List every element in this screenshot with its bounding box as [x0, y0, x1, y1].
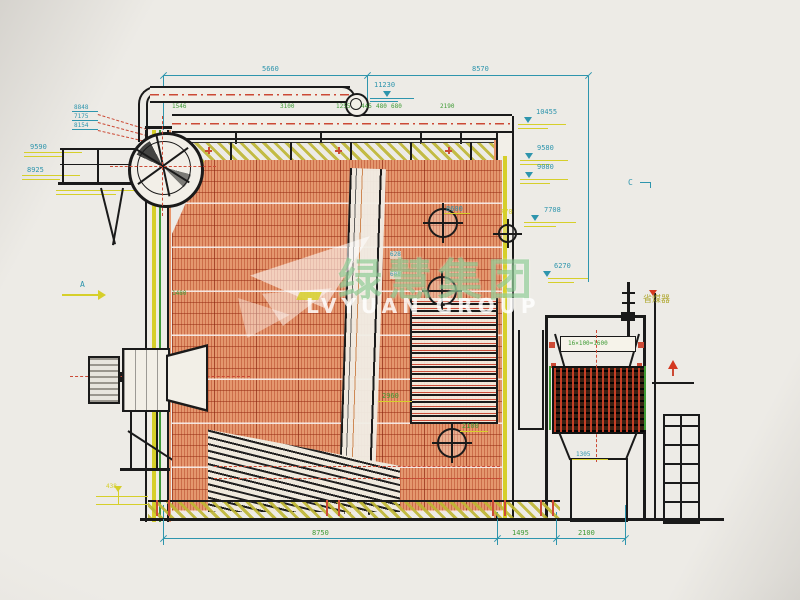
- level-line: [370, 98, 414, 99]
- level-line: [520, 160, 568, 161]
- leader-line: [444, 213, 470, 214]
- burner-foot: [120, 468, 170, 471]
- flue-duct-wall: [542, 330, 544, 430]
- level-line: [518, 128, 548, 129]
- level-line: [548, 282, 574, 283]
- survey-marker-stem: [672, 369, 674, 376]
- left-elev-2: 7175: [74, 113, 88, 121]
- platform-trim: [56, 190, 142, 191]
- platform-rail: [60, 164, 138, 165]
- elev-7708: 7708: [544, 206, 561, 214]
- dim-small: 3100: [280, 103, 294, 111]
- anchor-column: [540, 500, 554, 516]
- dim-small: 1255: [336, 103, 350, 111]
- level-line: [24, 156, 62, 157]
- burner-leg: [156, 408, 158, 468]
- steam-pipe-upper: [150, 86, 350, 103]
- survey-baseline: [652, 382, 694, 384]
- cross-mark-icon: [448, 147, 450, 154]
- level-line: [518, 124, 566, 125]
- arrowhead-icon: [98, 290, 106, 300]
- photographed-drawing-sheet: 5660 8570 11230 1546 3100 1255 445 480 6…: [0, 0, 800, 600]
- level-line: [96, 496, 148, 497]
- platform-brace: [112, 188, 124, 245]
- stairs: [663, 414, 700, 524]
- anno-438: 438: [106, 483, 117, 491]
- platform-post: [97, 148, 99, 184]
- level-flag-icon: [524, 117, 532, 123]
- survey-marker-icon: [668, 360, 678, 369]
- anno-608: 608: [390, 271, 401, 279]
- elev-9580: 9580: [537, 144, 554, 152]
- elev-10455: 10455: [536, 108, 557, 116]
- boiler-top-line: [145, 138, 513, 140]
- cross-mark-icon: [338, 147, 340, 154]
- dim-top-left: 5660: [262, 65, 279, 73]
- level-line: [520, 179, 568, 180]
- level-line: [22, 175, 80, 176]
- superheater-coil: [410, 298, 498, 424]
- crosshair-symbol-icon: [498, 224, 517, 243]
- eco-hopper-side: [625, 432, 638, 461]
- extension-line: [588, 76, 589, 282]
- valve: [621, 312, 635, 321]
- dimension-line-top: [163, 75, 588, 76]
- eco-centerline: [596, 330, 597, 462]
- underline: [460, 431, 488, 432]
- level-flag-icon: [525, 153, 533, 159]
- level-line: [524, 226, 556, 227]
- cross-mark-icon: [208, 147, 210, 154]
- pipe-flange: [622, 292, 635, 294]
- eco-outlet-duct: [570, 458, 628, 522]
- dim-small: 480: [376, 103, 387, 111]
- platform-post: [62, 148, 64, 184]
- eco-hopper-side: [558, 432, 571, 461]
- anchor-column: [492, 500, 506, 516]
- crosshair-symbol-icon: [427, 276, 457, 306]
- level-line: [22, 179, 60, 180]
- section-mark-c: C: [628, 179, 633, 187]
- left-elev-3: 8154: [74, 122, 88, 130]
- anno-770: 770: [500, 208, 513, 216]
- anchor-column: [326, 500, 340, 516]
- section-arrow: [62, 294, 100, 296]
- corner-marker: [638, 342, 644, 348]
- burner-body: [122, 348, 170, 412]
- level-flag-icon: [543, 271, 551, 277]
- elev-9080: 9080: [537, 163, 554, 171]
- level-line: [524, 222, 576, 223]
- eco-frame-column: [545, 316, 548, 520]
- platform-rail: [60, 148, 138, 150]
- eco-side-post: [549, 366, 551, 430]
- header-pipe: [172, 114, 512, 133]
- underline: [572, 459, 608, 460]
- left-9590: 9590: [30, 143, 47, 151]
- anno-8600: 8600: [446, 205, 463, 213]
- left-elev-1: 8848: [74, 104, 88, 112]
- drum-centerline: [162, 116, 163, 216]
- dim-top-right: 8570: [472, 65, 489, 73]
- dim-small: 1546: [172, 103, 186, 111]
- economizer-label: 省煤器: [643, 296, 670, 304]
- flue-duct-wall: [518, 428, 544, 430]
- burner-leg: [130, 408, 132, 468]
- anno-2960: 2960: [382, 392, 399, 400]
- anchor-column: [156, 500, 170, 516]
- level-flag-icon: [383, 91, 391, 97]
- level-line: [24, 152, 82, 153]
- dim-small: 445: [361, 103, 372, 111]
- anno-1305: 1305: [576, 451, 590, 459]
- crosshair-symbol-icon: [437, 428, 467, 458]
- burner-cone-inner: [168, 347, 206, 409]
- grate-centerline: [214, 478, 500, 479]
- anno-2100: 2100: [462, 422, 479, 430]
- flue-duct-wall: [518, 330, 520, 430]
- economizer-tube-bank: [552, 366, 646, 434]
- dim-bottom-8750: 8750: [312, 529, 329, 537]
- pipe-flange: [622, 302, 635, 304]
- level-line: [96, 504, 148, 505]
- level-11230: 11230: [374, 81, 395, 89]
- burner-motor: [88, 356, 120, 404]
- level-line: [548, 278, 588, 279]
- anno-1480: 1480: [172, 290, 186, 298]
- section-mark-a: A: [80, 281, 85, 289]
- left-8925: 8925: [27, 166, 44, 174]
- dim-small: 2190: [440, 103, 454, 111]
- level-flag-icon: [531, 215, 539, 221]
- elev-6270: 6270: [554, 262, 571, 270]
- anno-628: 628: [390, 251, 401, 259]
- eco-side-post: [644, 366, 646, 430]
- level-line: [370, 101, 398, 102]
- dim-bottom-2100: 2100: [578, 529, 595, 537]
- dim-bottom-1495: 1495: [512, 529, 529, 537]
- level-flag-icon: [525, 172, 533, 178]
- dim-small: 680: [391, 103, 402, 111]
- underline: [378, 401, 412, 402]
- platform-trim: [56, 194, 116, 195]
- corner-marker: [549, 342, 555, 348]
- eco-spec-box: 16×100=1600: [560, 336, 636, 352]
- eco-spec-text: 16×100=1600: [568, 340, 608, 348]
- grate-centerline: [214, 466, 500, 467]
- flag-pole: [654, 293, 656, 520]
- drum-centerline: [110, 166, 216, 167]
- section-bracket: [650, 182, 651, 188]
- level-line: [520, 183, 550, 184]
